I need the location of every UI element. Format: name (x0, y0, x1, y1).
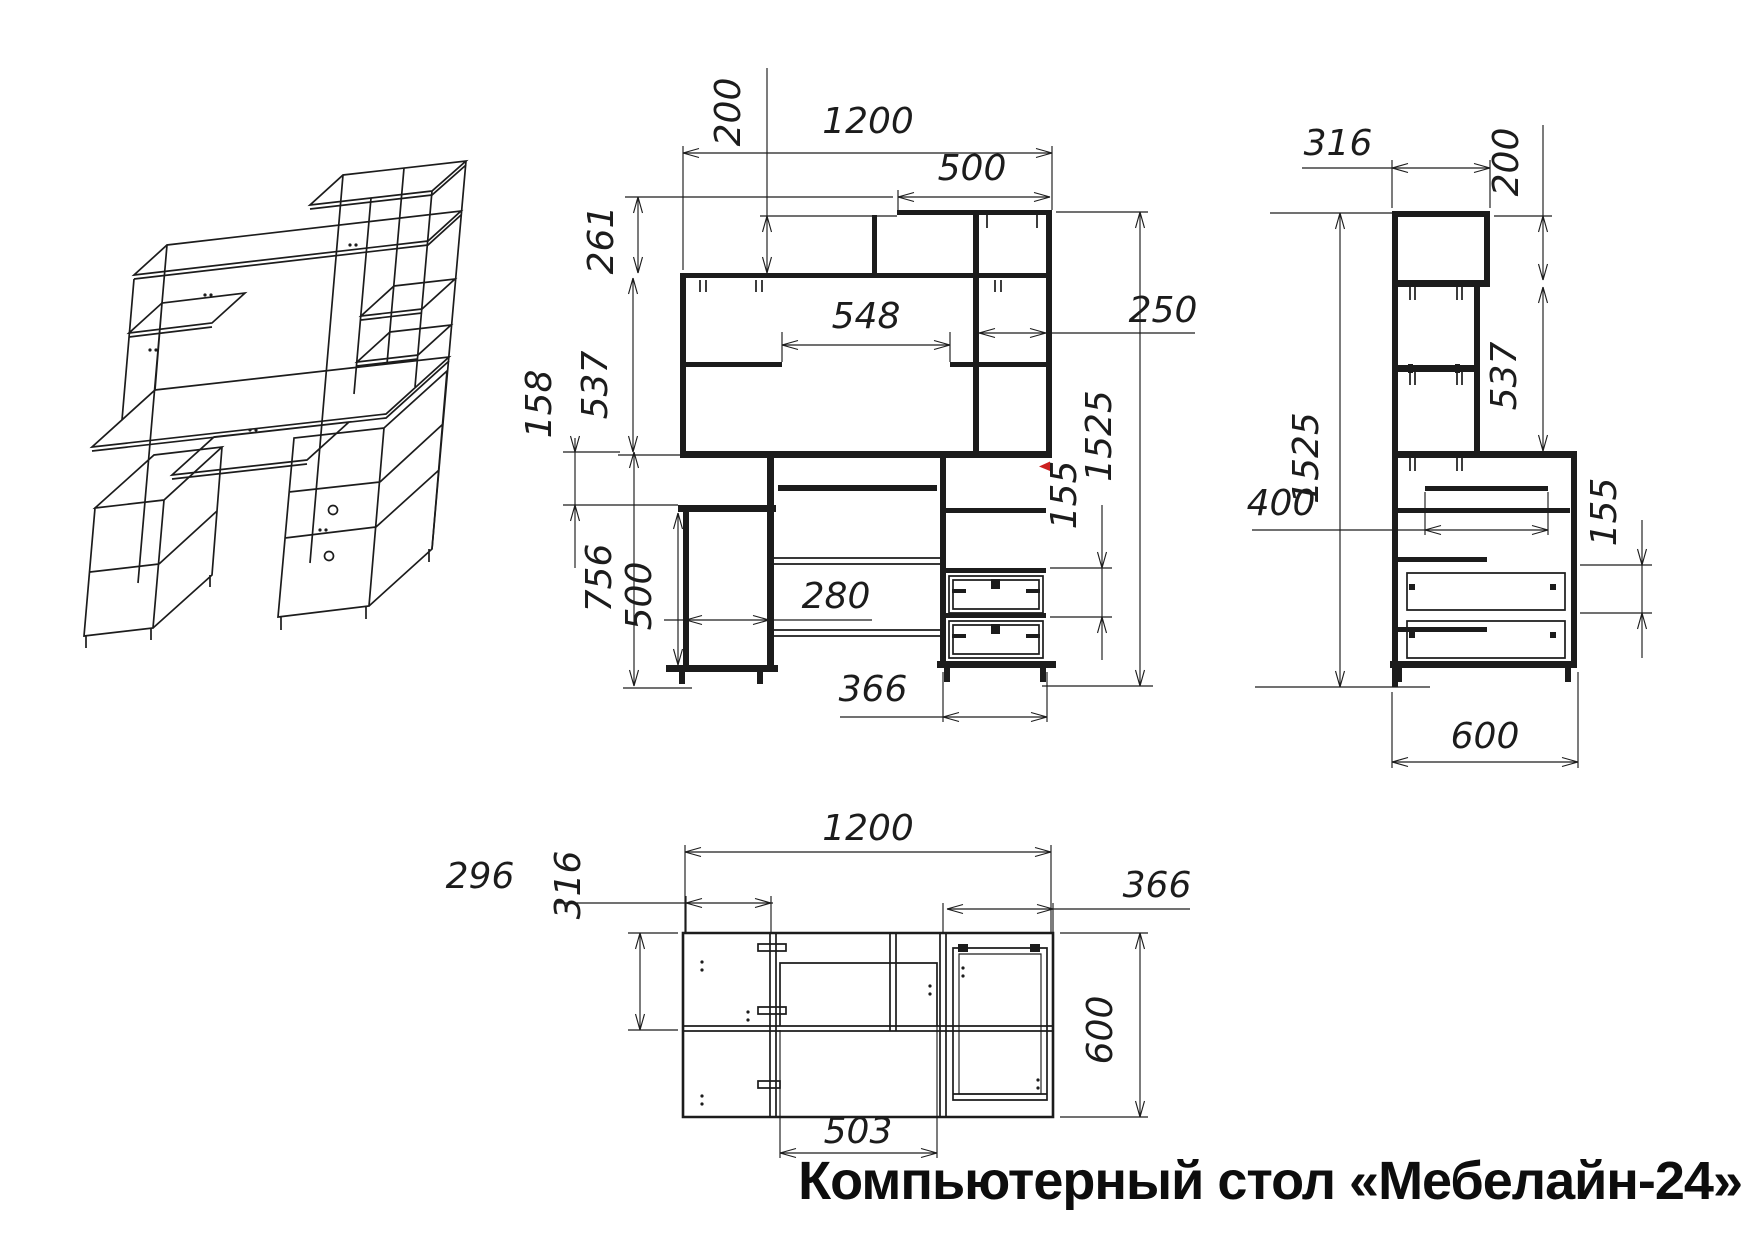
front-drawer-fronts (700, 215, 1043, 658)
dim-side-drawer-spacing: 155 (1584, 478, 1625, 547)
drawing-title: Компьютерный стол «Мебелайн-24» (798, 1151, 1742, 1211)
dim-front-total-width: 1200 (822, 101, 914, 142)
dim-front-cabinet-height: 500 (619, 562, 660, 631)
dim-side-hutch-height: 537 (1484, 342, 1525, 411)
top-pedestal-inner-lining (959, 954, 1041, 1094)
iso-drawer-handle-upper (329, 506, 338, 515)
dim-front-under-desktop-gap: 158 (519, 370, 560, 439)
front-view: 1200 500 200 261 537 158 756 500 548 280… (519, 68, 1197, 722)
dim-front-shelf-drop: 261 (581, 206, 622, 275)
iso-left-cabinet (84, 447, 222, 648)
iso-shelf-slabs (92, 161, 466, 479)
dim-top-desk-depth: 600 (1080, 996, 1121, 1065)
dim-front-pedestal-width: 366 (839, 669, 908, 710)
blueprint-page: 1200 500 200 261 537 158 756 500 548 280… (0, 0, 1754, 1240)
dim-top-hutch-depth: 316 (548, 851, 589, 920)
dim-front-cabinet-width: 280 (802, 576, 871, 617)
dim-front-niche-width: 548 (832, 296, 901, 337)
side-dimension-arrows (1336, 164, 1647, 767)
isometric-view (84, 161, 466, 648)
dim-front-top-shelf-width: 500 (938, 148, 1007, 189)
dim-side-desk-depth: 600 (1451, 716, 1520, 757)
dim-front-tower-width: 250 (1129, 290, 1198, 331)
dim-front-hutch-height: 537 (575, 351, 616, 420)
dim-front-total-height: 1525 (1079, 390, 1120, 482)
dim-top-total-width: 1200 (822, 808, 914, 849)
technical-drawing: 1200 500 200 261 537 158 756 500 548 280… (0, 0, 1754, 1240)
top-fitting-dots (700, 960, 1039, 1105)
top-internal-panels (683, 933, 1053, 1117)
dim-side-top-shelf-depth: 316 (1304, 123, 1373, 164)
dim-front-desk-height: 756 (579, 544, 620, 613)
iso-drawer-handle-lower (325, 552, 334, 561)
side-view: 316 200 537 1525 400 155 600 (1247, 123, 1652, 768)
top-view: 1200 296 316 366 600 503 (446, 808, 1192, 1158)
dim-side-top-shelf-height: 200 (1486, 128, 1527, 197)
dim-top-tray-width: 503 (824, 1111, 893, 1152)
dim-front-top-shelf-height: 200 (708, 78, 749, 147)
top-outer-outline (683, 933, 1053, 1117)
dim-top-left-section-width: 296 (446, 856, 515, 897)
dim-top-pedestal-width: 366 (1123, 865, 1192, 906)
iso-drawer-pedestal (278, 371, 447, 630)
iso-frame-posts (122, 161, 466, 583)
dim-side-tray-depth: 400 (1247, 483, 1316, 524)
side-structure-panels (1390, 211, 1577, 687)
